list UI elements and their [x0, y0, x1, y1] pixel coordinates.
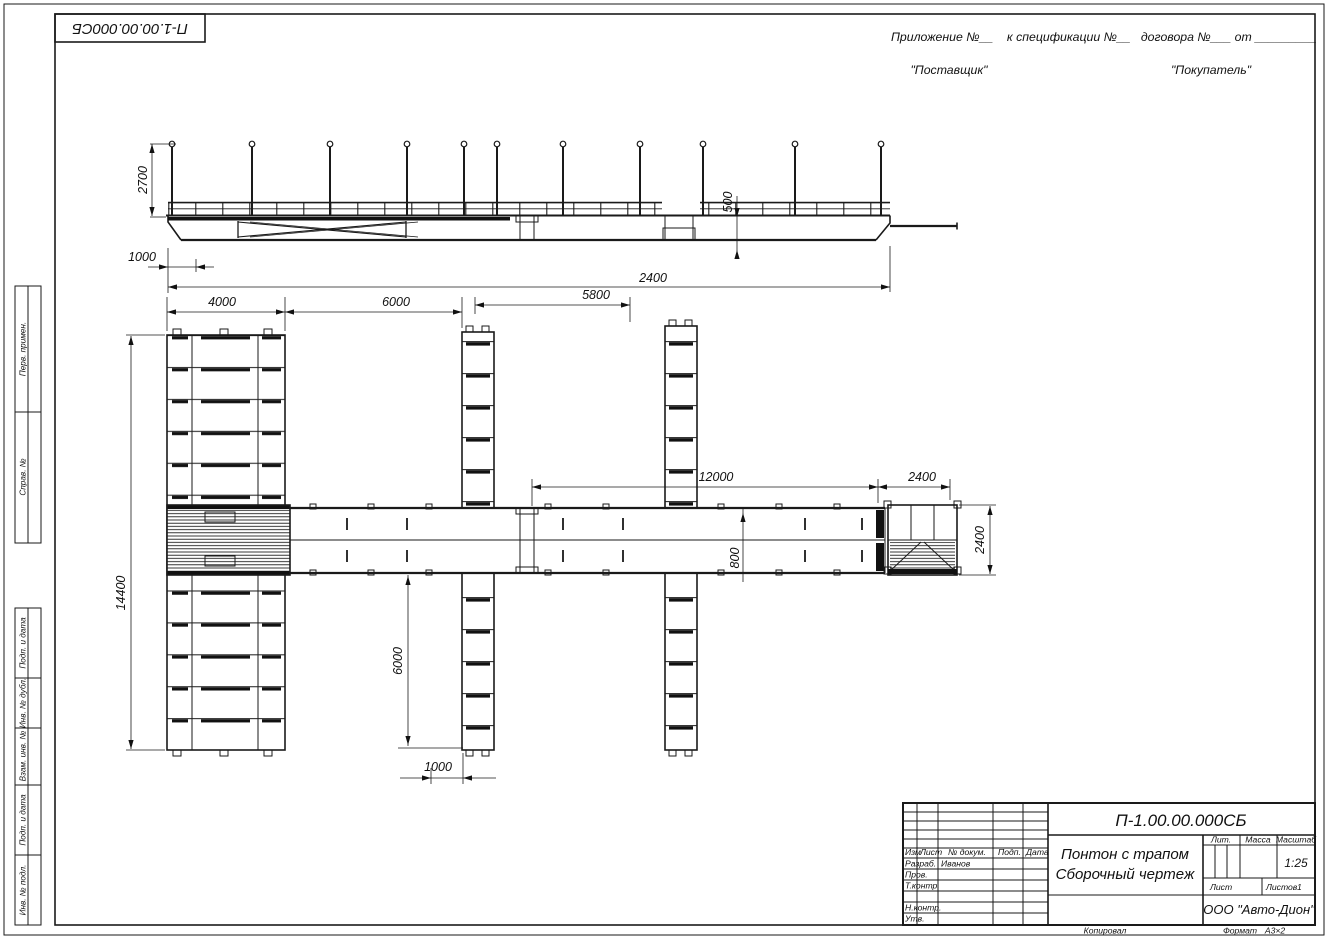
frame-label-inv-podl: Инв. № подл.	[19, 865, 28, 916]
lit-label: Лит.	[1210, 835, 1231, 845]
doc-name-line2: Сборочный чертеж	[1056, 866, 1195, 883]
listov-label: Листов	[1265, 882, 1298, 892]
dim-1000-bottom: 1000	[424, 760, 452, 774]
dim-4000: 4000	[208, 295, 236, 309]
plan-finger-piers	[462, 320, 697, 756]
plan-view	[167, 320, 961, 756]
doc-designation: П-1.00.00.000СБ	[1115, 811, 1246, 830]
annex-line: Приложение №__ к спецификации №__ догово…	[891, 30, 1317, 44]
col-izm: Изм	[905, 847, 921, 857]
format-value: А3×2	[1264, 926, 1286, 936]
massa-label: Масса	[1245, 835, 1271, 845]
dim-6000-bottom: 6000	[391, 647, 405, 675]
kopiroval-label: Копировал	[1084, 926, 1127, 936]
frame-left-columns: Перв. примен. Справ. № Подп. и дата Инв.…	[15, 286, 41, 925]
plan-walkway	[290, 504, 885, 575]
dim-2400-plan: 2400	[907, 470, 936, 484]
shore-gangway	[890, 223, 957, 230]
row-nkontr: Н.контр.	[905, 903, 941, 913]
list-label: Лист	[1209, 882, 1232, 892]
buyer-label: "Покупатель"	[1171, 63, 1252, 77]
dim-12000: 12000	[699, 470, 734, 484]
frame-label-podp-data-1: Подп. и дата	[19, 617, 28, 669]
row-prov: Пров.	[905, 870, 928, 880]
frame-label-inv-dubl: Инв. № дубл.	[19, 678, 28, 728]
plan-right-platform	[884, 501, 961, 575]
stowed-gangway	[168, 217, 510, 221]
dim-5800: 5800	[582, 288, 610, 302]
col-data: Дата	[1025, 847, 1049, 857]
format-label: Формат	[1223, 926, 1257, 936]
corner-designation-text: П-1.00.00.000СБ	[72, 20, 188, 37]
listov-value: 1	[1297, 882, 1302, 892]
corner-designation-stamp: П-1.00.00.000СБ	[55, 14, 205, 42]
dim-2400-elev: 2400	[638, 271, 667, 285]
dim-500: 500	[721, 192, 735, 213]
annex-header: Приложение №__ к спецификации №__ догово…	[891, 30, 1317, 77]
title-block: Изм Лист № докум. Подп. Дата Разраб. Ива…	[903, 803, 1317, 936]
col-list: Лист	[919, 847, 942, 857]
row-razrab: Разраб.	[905, 859, 936, 869]
elevation-view	[166, 141, 957, 240]
supplier-label: "Поставщик"	[910, 63, 988, 77]
railing	[168, 202, 890, 216]
frame-label-sprav-no: Справ. №	[19, 458, 28, 495]
row-utv: Утв.	[904, 914, 925, 924]
dim-1000-elev: 1000	[128, 250, 156, 264]
col-ndoc: № докум.	[948, 847, 986, 857]
dim-6000-top: 6000	[382, 295, 410, 309]
dim-800: 800	[728, 548, 742, 569]
doc-name-line1: Понтон с трапом	[1061, 846, 1189, 863]
company-name: ООО "Авто-Дион"	[1203, 902, 1316, 917]
dim-2700: 2700	[136, 166, 150, 195]
frame-label-vzam-inv: Взам. инв. №	[19, 731, 28, 782]
drawing-sheet: П-1.00.00.000СБ Приложение №__ к специфи…	[0, 0, 1328, 939]
row-razrab-name: Иванов	[941, 859, 971, 869]
dim-14400: 14400	[114, 576, 128, 611]
pontoon-hull	[166, 216, 890, 241]
scale-value: 1:25	[1284, 856, 1308, 870]
row-tkontr: Т.контр.	[905, 881, 940, 891]
masshtab-label: Масштаб	[1276, 835, 1317, 845]
drawing-canvas: П-1.00.00.000СБ Приложение №__ к специфи…	[0, 0, 1328, 939]
scissor-mechanism	[238, 221, 418, 238]
frame-label-podp-data-2: Подп. и дата	[19, 794, 28, 846]
frame-label-perv-primen: Перв. примен.	[19, 322, 28, 376]
plan-shore-ramp	[167, 505, 290, 575]
col-podp: Подп.	[998, 847, 1021, 857]
dim-2400-right: 2400	[973, 526, 987, 555]
